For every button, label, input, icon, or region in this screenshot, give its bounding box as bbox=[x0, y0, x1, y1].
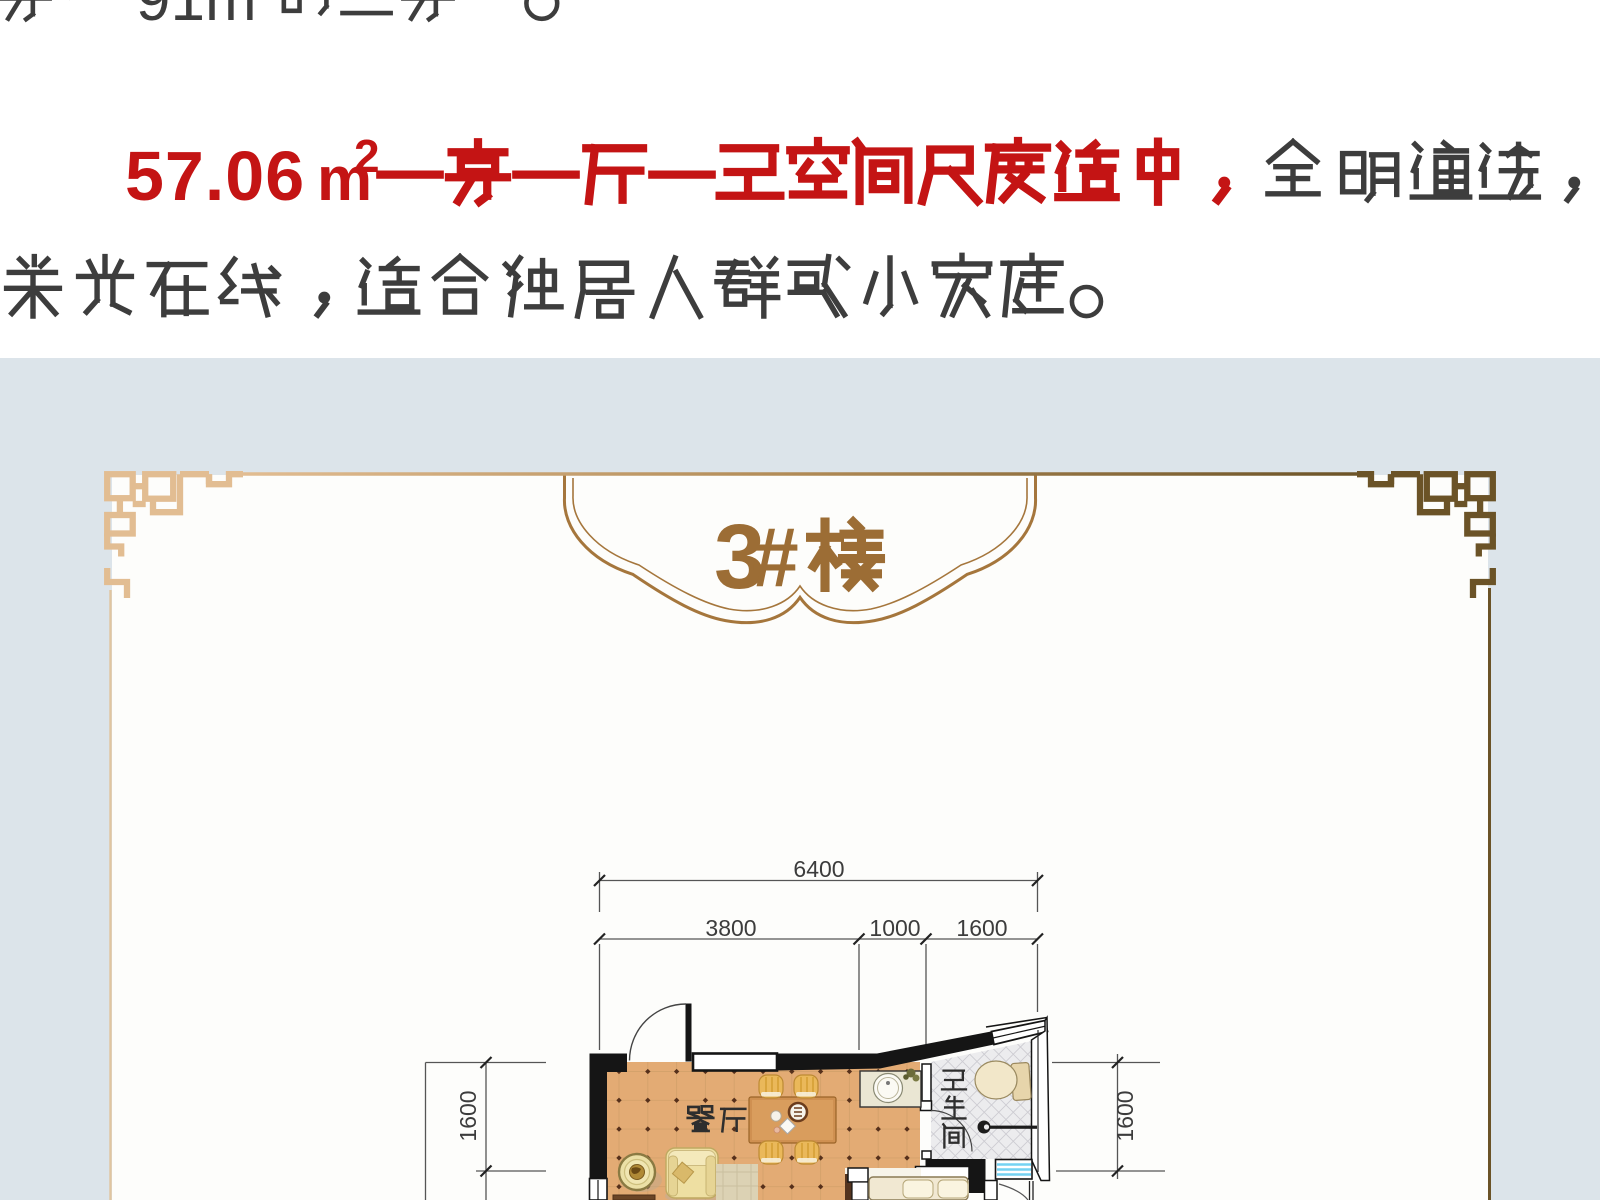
svg-text:1600: 1600 bbox=[455, 1090, 481, 1141]
svg-text:57.06: 57.06 bbox=[125, 137, 305, 215]
svg-text:6400: 6400 bbox=[793, 856, 844, 882]
svg-text:2: 2 bbox=[354, 130, 380, 182]
svg-text:#: # bbox=[752, 510, 799, 604]
svg-text:2: 2 bbox=[248, 0, 270, 1]
svg-text:3800: 3800 bbox=[705, 915, 756, 941]
svg-text:91: 91 bbox=[136, 0, 205, 34]
svg-text:1000: 1000 bbox=[869, 915, 920, 941]
svg-text:m: m bbox=[205, 0, 257, 34]
svg-text:1600: 1600 bbox=[1112, 1090, 1138, 1141]
svg-text:1600: 1600 bbox=[956, 915, 1007, 941]
